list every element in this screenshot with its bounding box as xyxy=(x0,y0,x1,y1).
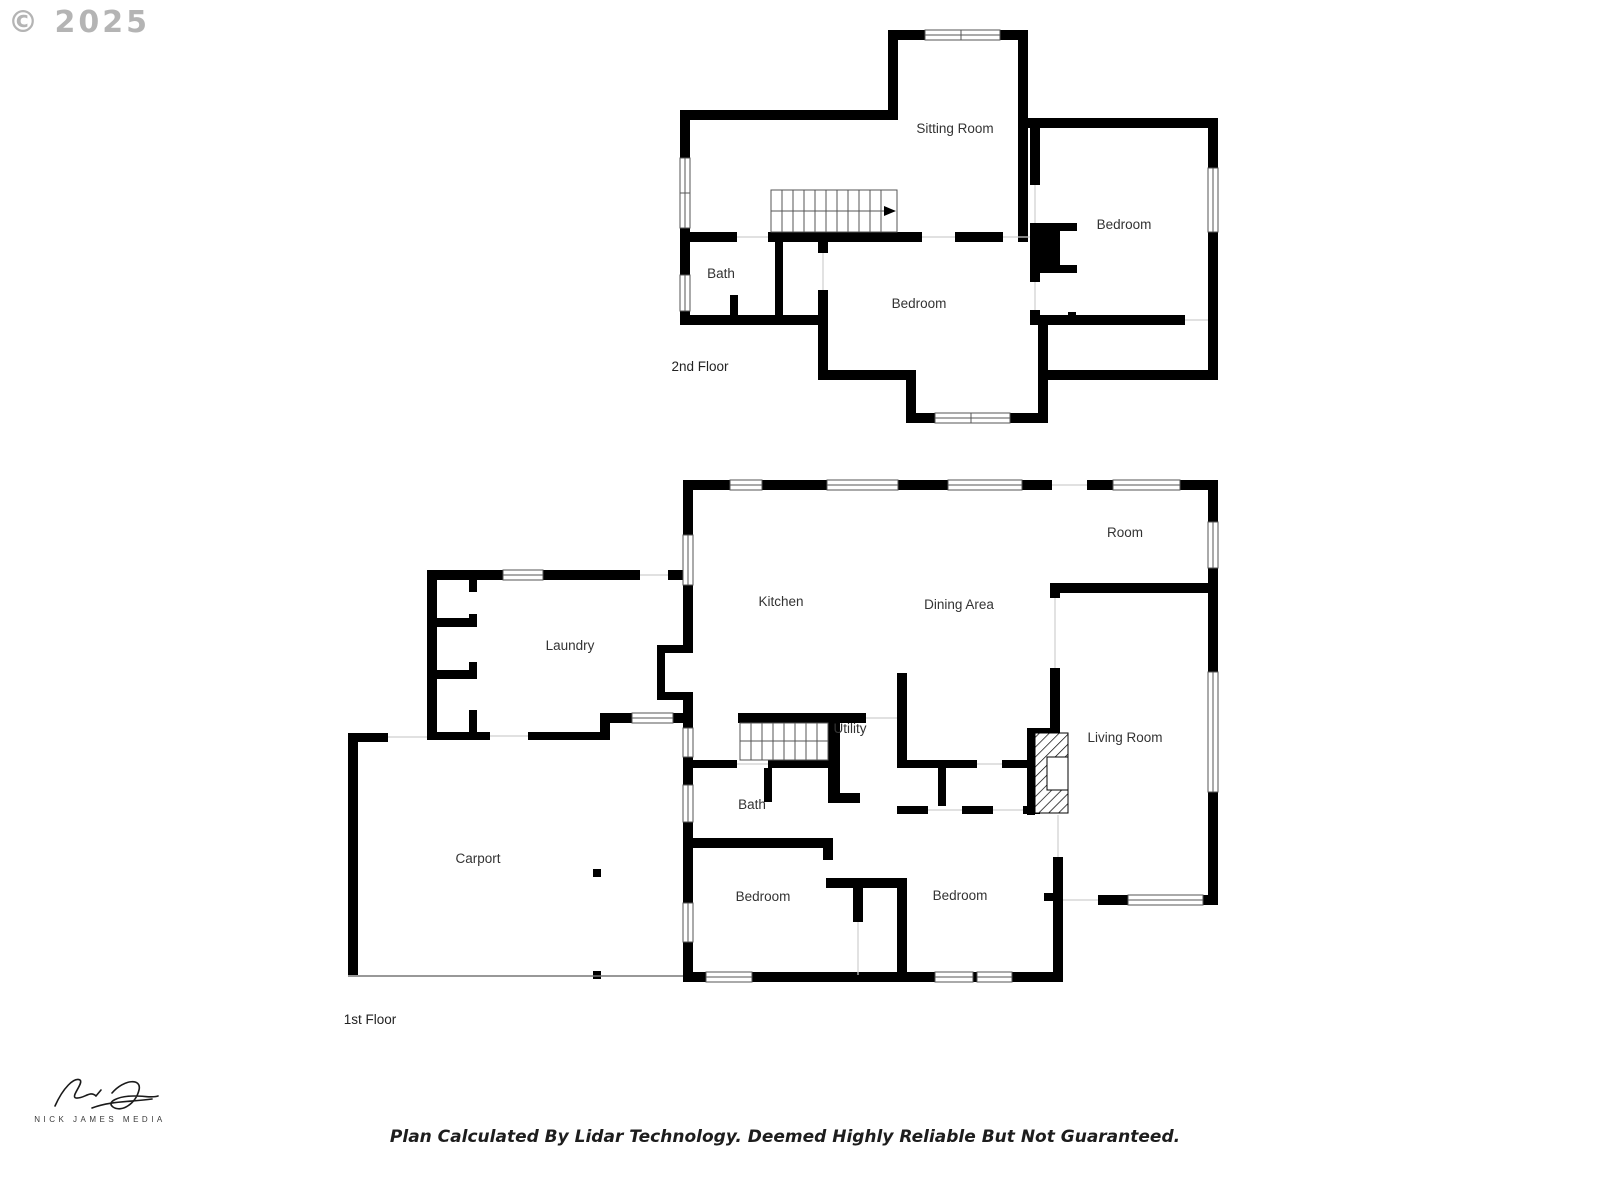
window xyxy=(1208,672,1218,792)
window xyxy=(1208,522,1218,568)
first-floor-staircase xyxy=(740,723,828,760)
room-label-kitchen: Kitchen xyxy=(758,594,803,609)
floor-label-1st: 1st Floor xyxy=(344,1012,397,1027)
window xyxy=(632,713,673,723)
room-label-bedroom-right-1f: Bedroom xyxy=(933,888,988,903)
disclaimer-text: Plan Calculated By Lidar Technology. Dee… xyxy=(390,1127,1180,1147)
room-label-dining-area: Dining Area xyxy=(924,597,994,612)
room-label-bedroom-right-2f: Bedroom xyxy=(1097,217,1152,232)
window xyxy=(683,728,693,757)
brand-name: NICK JAMES MEDIA xyxy=(34,1115,166,1124)
window xyxy=(1113,480,1180,490)
room-label-bedroom-left-1f: Bedroom xyxy=(736,889,791,904)
window xyxy=(827,480,898,490)
signature-script-icon xyxy=(55,1080,101,1106)
window xyxy=(683,903,693,942)
floor-label-2nd: 2nd Floor xyxy=(671,359,729,374)
fireplace xyxy=(1035,733,1068,813)
window xyxy=(680,158,690,228)
window xyxy=(925,30,1000,40)
window xyxy=(977,972,1012,982)
window xyxy=(935,972,973,982)
copyright-text: © 2025 xyxy=(8,5,150,40)
floor-plan-page: © 2025 xyxy=(0,0,1600,1200)
window xyxy=(730,480,762,490)
floor-plan-drawing: © 2025 xyxy=(0,0,1600,1200)
window xyxy=(1128,895,1203,905)
window xyxy=(680,275,690,311)
room-label-utility: Utility xyxy=(834,721,867,736)
room-label-bath-2f: Bath xyxy=(707,266,735,281)
room-label-bedroom-center-2f: Bedroom xyxy=(892,296,947,311)
signature-flourish-icon xyxy=(92,1099,152,1108)
room-label-sitting-room: Sitting Room xyxy=(916,121,993,136)
stair-direction-arrow-icon xyxy=(884,206,896,216)
window xyxy=(503,570,543,580)
room-label-carport: Carport xyxy=(455,851,500,866)
second-floor-door-thresholds xyxy=(737,185,1208,320)
room-label-living-room: Living Room xyxy=(1087,730,1162,745)
room-label-bath-1f: Bath xyxy=(738,797,766,812)
room-label-room: Room xyxy=(1107,525,1143,540)
second-floor-staircase xyxy=(771,190,897,232)
room-label-laundry: Laundry xyxy=(546,638,595,653)
first-floor-plan: Room Kitchen Dining Area Laundry Utility… xyxy=(344,480,1218,1027)
window xyxy=(935,413,1010,423)
window xyxy=(948,480,1022,490)
window xyxy=(683,535,693,585)
window xyxy=(683,785,693,822)
signature-script-icon xyxy=(111,1082,158,1109)
window xyxy=(1208,168,1218,232)
window xyxy=(706,972,752,982)
photographer-signature: NICK JAMES MEDIA xyxy=(34,1080,166,1124)
second-floor-plan: Sitting Room Bedroom Bath Bedroom 2nd Fl… xyxy=(671,30,1218,423)
